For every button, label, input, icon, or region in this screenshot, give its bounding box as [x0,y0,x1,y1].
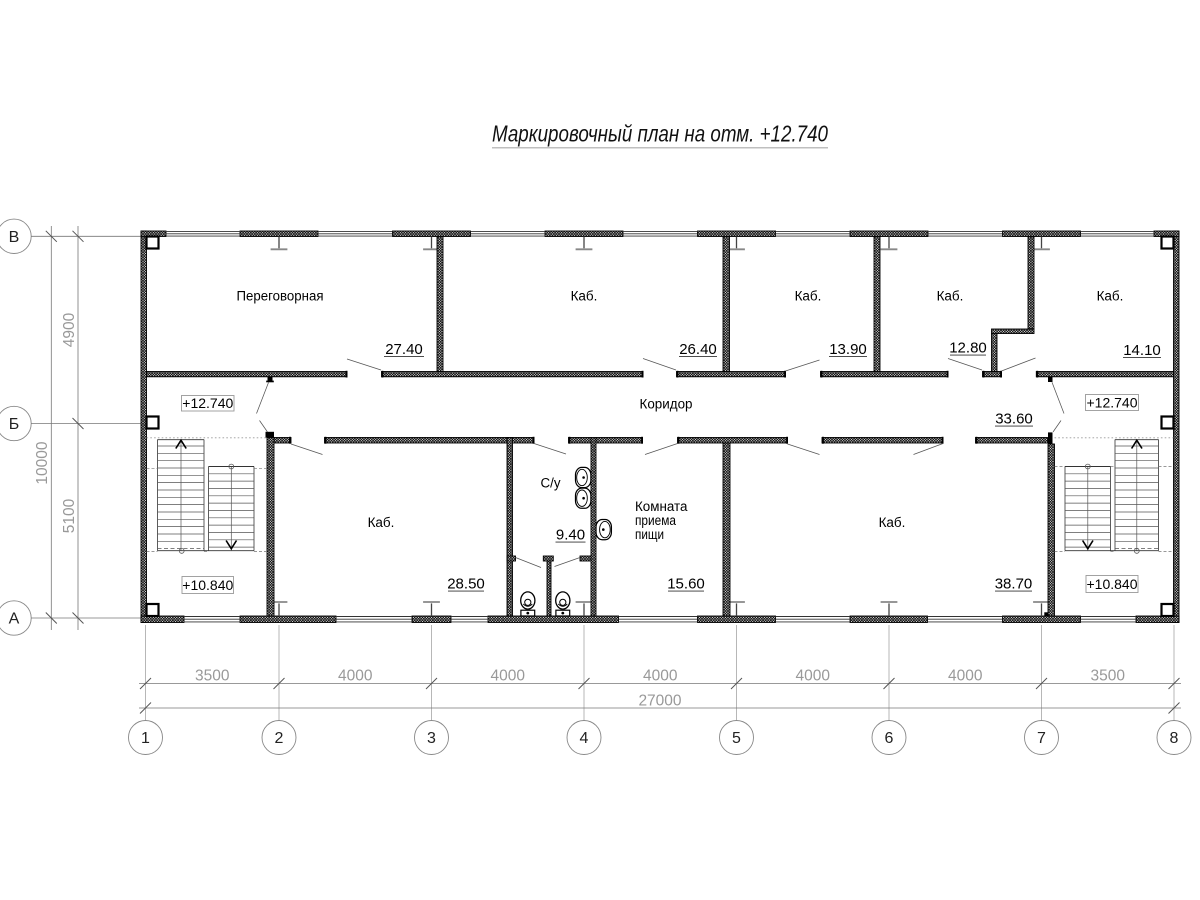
svg-text:5100: 5100 [61,498,78,533]
svg-text:6: 6 [885,730,894,747]
svg-text:+10.840: +10.840 [1087,576,1138,592]
svg-text:Комната: Комната [635,499,688,514]
svg-text:9.40: 9.40 [556,527,585,544]
svg-text:4900: 4900 [61,312,78,347]
svg-text:7: 7 [1037,730,1046,747]
svg-text:Каб.: Каб. [879,515,906,530]
svg-text:33.60: 33.60 [995,411,1033,428]
svg-text:Переговорная: Переговорная [237,289,324,304]
svg-text:4000: 4000 [643,668,678,685]
svg-text:В: В [9,229,20,246]
svg-text:27.40: 27.40 [385,341,423,358]
svg-text:10000: 10000 [34,441,51,484]
svg-text:пищи: пищи [635,527,664,542]
svg-text:3500: 3500 [1091,668,1126,685]
svg-text:4: 4 [580,730,589,747]
svg-text:1: 1 [141,730,150,747]
svg-text:8: 8 [1170,730,1179,747]
svg-text:Б: Б [9,416,20,433]
svg-text:3500: 3500 [195,668,230,685]
svg-text:+12.740: +12.740 [182,395,233,411]
svg-text:Каб.: Каб. [571,289,598,304]
svg-text:приема: приема [635,513,676,528]
svg-text:Каб.: Каб. [795,289,822,304]
svg-text:+10.840: +10.840 [182,577,233,593]
svg-text:Каб.: Каб. [937,289,964,304]
svg-text:С/у: С/у [541,476,561,491]
svg-text:2: 2 [275,730,284,747]
svg-text:12.80: 12.80 [949,340,987,357]
svg-text:27000: 27000 [638,693,681,710]
svg-text:4000: 4000 [338,668,373,685]
svg-text:4000: 4000 [796,668,831,685]
svg-text:Маркировочный план на отм. +12: Маркировочный план на отм. +12.740 [492,121,828,147]
svg-text:Коридор: Коридор [640,397,693,412]
svg-text:Каб.: Каб. [1097,289,1124,304]
svg-text:26.40: 26.40 [679,341,717,358]
svg-text:+12.740: +12.740 [1087,395,1138,411]
svg-text:15.60: 15.60 [667,576,705,593]
svg-text:4000: 4000 [948,668,983,685]
svg-text:4000: 4000 [491,668,526,685]
svg-text:3: 3 [427,730,436,747]
svg-text:А: А [9,611,20,628]
svg-text:13.90: 13.90 [829,341,867,358]
svg-text:5: 5 [732,730,741,747]
svg-text:28.50: 28.50 [447,576,485,593]
svg-text:14.10: 14.10 [1123,342,1161,359]
svg-text:Каб.: Каб. [368,515,395,530]
svg-text:38.70: 38.70 [995,576,1033,593]
